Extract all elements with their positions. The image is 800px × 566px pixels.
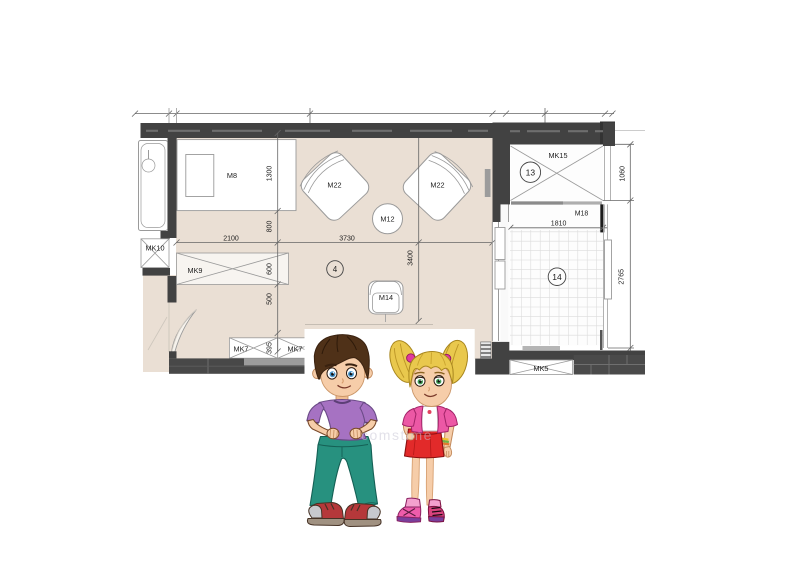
- svg-text:MK10: MK10: [145, 244, 164, 253]
- svg-text:2100: 2100: [223, 235, 239, 242]
- svg-text:MK9: MK9: [187, 266, 202, 275]
- svg-text:500: 500: [267, 293, 274, 305]
- svg-text:MK7: MK7: [287, 344, 302, 353]
- svg-text:comstime: comstime: [361, 427, 433, 443]
- svg-text:1060: 1060: [620, 166, 627, 182]
- svg-text:1810: 1810: [551, 220, 567, 227]
- svg-text:M22: M22: [327, 181, 341, 190]
- svg-text:M22: M22: [430, 181, 444, 190]
- svg-text:14: 14: [552, 272, 562, 282]
- svg-text:3400: 3400: [408, 250, 415, 266]
- svg-text:2765: 2765: [619, 269, 626, 285]
- svg-text:MK15: MK15: [548, 151, 567, 160]
- svg-text:395: 395: [267, 342, 274, 354]
- svg-text:4: 4: [333, 265, 338, 274]
- svg-text:M8: M8: [227, 171, 237, 180]
- svg-text:M14: M14: [379, 293, 393, 302]
- svg-text:MK7: MK7: [233, 344, 248, 353]
- svg-text:M18: M18: [575, 211, 589, 218]
- svg-text:M12: M12: [380, 215, 394, 224]
- svg-text:800: 800: [267, 221, 274, 233]
- svg-text:600: 600: [267, 263, 274, 275]
- svg-text:13: 13: [526, 167, 536, 177]
- svg-text:3730: 3730: [339, 235, 355, 242]
- svg-text:MK5: MK5: [533, 364, 548, 373]
- svg-text:1300: 1300: [267, 166, 274, 182]
